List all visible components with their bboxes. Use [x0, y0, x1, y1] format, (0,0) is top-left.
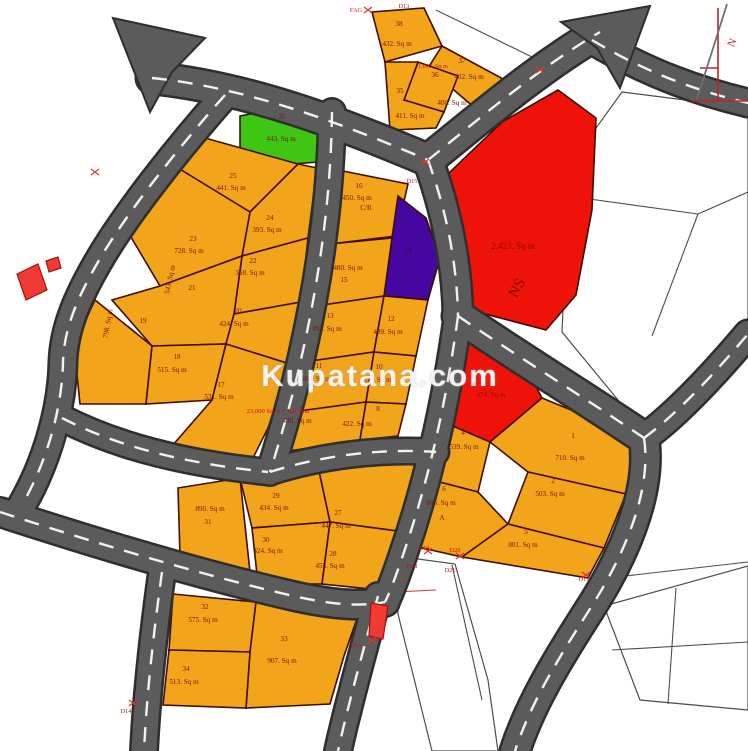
beacon-label: FAG — [350, 7, 363, 14]
beacon-label: D17 — [579, 576, 590, 583]
plot-12-label: 12 — [387, 315, 395, 323]
plot-13-label: 493. Sq m — [312, 325, 342, 333]
plot-5-label: 801. Sq m — [508, 541, 538, 549]
plot-34-label: 513. Sq m — [169, 678, 199, 686]
plot-32-label: 32 — [201, 603, 209, 611]
plot-30-label: 424. Sq m — [253, 547, 283, 555]
plot-9-label: 480. Sq m — [282, 417, 312, 425]
plot-8-label: 422. Sq m — [342, 420, 372, 428]
annotation: 23,000 Sq m = full land — [247, 408, 310, 415]
plot-15-label: 15 — [340, 276, 348, 284]
plot-6-label: A — [439, 514, 445, 522]
plot-5-label: 5 — [524, 528, 528, 536]
beacon-label: D20 — [450, 547, 461, 554]
plot-7-label: 7 — [491, 375, 495, 383]
plot-34-label: 34 — [182, 665, 190, 673]
unplanned-area-south-left — [396, 556, 498, 751]
plot-22-label: 22 — [249, 257, 257, 265]
plot-1-label: 1 — [571, 432, 575, 440]
plot-10-label: 10 — [375, 363, 383, 371]
plot-38-label: 38 — [395, 20, 403, 28]
plot-20-label: 424. Sq m — [219, 320, 249, 328]
plot-23-label: 728. Sq m — [174, 247, 204, 255]
plot-27-label: 447. Sq m — [321, 522, 351, 530]
plot-17-label: 17 — [217, 381, 225, 389]
plot-23-label: 23 — [189, 235, 197, 243]
plot-16-label: 16 — [355, 182, 363, 190]
plot-12-label: 499. Sq m — [373, 328, 403, 336]
survey-map-svg: FAGD13D15D19D18D20D21D17D16D1426443. Sq … — [0, 0, 748, 751]
plot-37-label: 37 — [458, 57, 466, 65]
plot-37-label: 402. Sq m — [454, 73, 484, 81]
plot-35-label: 411. Sq m — [395, 112, 424, 120]
plot-32-label: 575. Sq m — [188, 616, 218, 624]
plot-26-label: 443. Sq m — [266, 135, 296, 143]
plot-13-label: 13 — [326, 312, 334, 320]
plot-16-label: C/R — [360, 204, 372, 212]
plot-26-label: 26 — [278, 113, 286, 121]
plot-6-label: 6 — [442, 485, 446, 493]
plot-2-label: 2 — [551, 477, 555, 485]
plot-24-label: 24 — [266, 214, 274, 222]
plot-survey-map: FAGD13D15D19D18D20D21D17D16D1426443. Sq … — [0, 0, 748, 751]
plot-28-label: 455. Sq m — [315, 562, 345, 570]
plot-20-label: 20 — [234, 307, 242, 315]
building-south — [369, 603, 388, 639]
plot-7-label: 474. Sq m — [476, 391, 506, 399]
plot-6-label: 806. Sq m — [426, 499, 456, 507]
plot-10-label: 496. Sq m — [362, 376, 392, 384]
plot-38-label: 432. Sq m — [382, 40, 412, 48]
plot-29-label: 434. Sq m — [259, 504, 289, 512]
annotation: 1,093. Sq m — [418, 63, 448, 70]
beacon-label: D13 — [399, 3, 410, 10]
plot-16-label: 450. Sq m — [342, 194, 372, 202]
plot-11-label: 480. Sq m — [301, 375, 331, 383]
plot-31-label: 890. Sq m — [195, 505, 225, 513]
plot-33-label: 907. Sq m — [267, 657, 297, 665]
plot-8-label: 8 — [376, 405, 380, 413]
plot-38 — [372, 8, 442, 62]
plot-18-label: 515. Sq m — [157, 366, 187, 374]
plot-11-label: 11 — [316, 362, 323, 370]
plot-15-label: 480. Sq m — [333, 264, 363, 272]
plot-1-label: 710. Sq m — [555, 454, 585, 462]
plot-30-label: 30 — [262, 536, 270, 544]
unplanned-area-southeast — [604, 566, 748, 710]
plot-4-label: 539. Sq m — [449, 443, 479, 451]
plot-31-label: 31 — [204, 518, 212, 526]
plot-25-label: 25 — [229, 172, 237, 180]
plot-19-label: 19 — [139, 317, 147, 325]
plot-18-label: 18 — [173, 353, 181, 361]
building-west-small — [46, 257, 61, 272]
plot-17-label: 531. Sq m — [204, 393, 234, 401]
plot-25-label: 441. Sq m — [216, 184, 246, 192]
beacon-label: D19 — [419, 545, 430, 552]
plot-36-label: 36 — [431, 71, 439, 79]
building-west-large — [17, 264, 47, 300]
plot-28-label: 28 — [329, 550, 337, 558]
plot-21-label: 21 — [188, 284, 196, 292]
plot-2-label: 503. Sq m — [535, 490, 565, 498]
beacon-label: D14 — [121, 708, 133, 715]
beacon-label: D16 — [351, 642, 362, 649]
plot-4-label: 4 — [461, 429, 465, 437]
plot-36-label: 400. Sq m — [437, 99, 467, 107]
plot-27-label: 27 — [334, 509, 342, 517]
plot-12 — [374, 296, 428, 356]
plot-24-label: 393. Sq m — [252, 226, 282, 234]
beacon-label: D15 — [407, 178, 418, 185]
plot-33-label: 33 — [280, 635, 288, 643]
beacon-label: D21 — [445, 567, 456, 574]
plot-14-label: 14 — [404, 247, 412, 255]
plot-29-label: 29 — [272, 492, 280, 500]
plot-NS-label: 2,423. Sq m — [491, 241, 535, 251]
north-arrow-label: N — [725, 37, 739, 49]
beacon-label: D18 — [407, 563, 418, 570]
plot-22-label: 368. Sq m — [235, 269, 265, 277]
plot-35-label: 35 — [396, 87, 404, 95]
